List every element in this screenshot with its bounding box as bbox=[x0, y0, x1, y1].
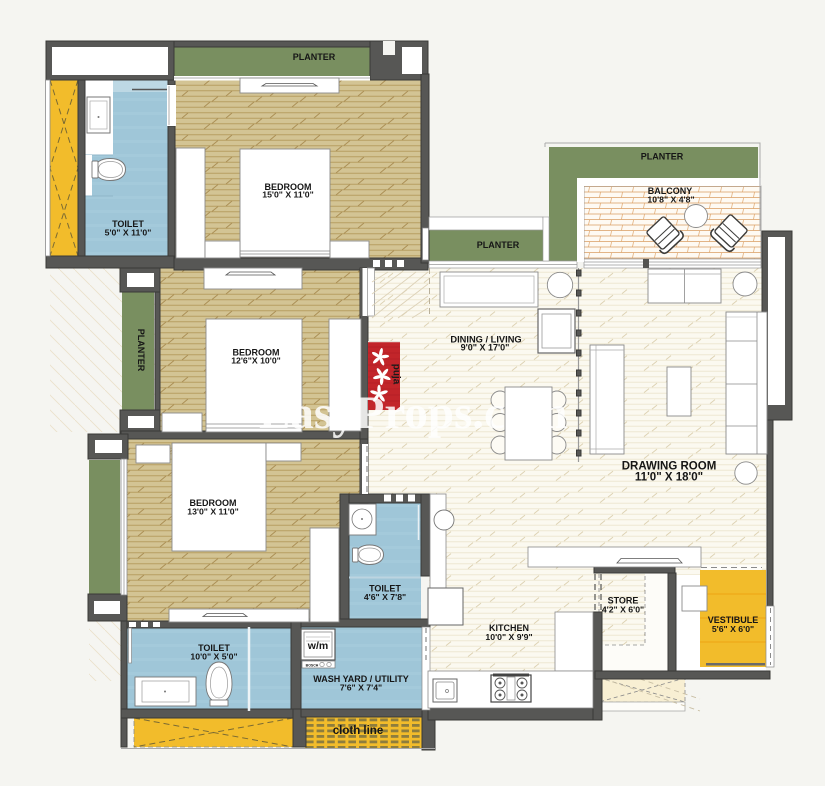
svg-text:EasyProps.com: EasyProps.com bbox=[259, 387, 568, 439]
svg-text:13'0" X 11'0": 13'0" X 11'0" bbox=[187, 507, 239, 517]
svg-text:7'6" X 7'4": 7'6" X 7'4" bbox=[340, 683, 382, 693]
svg-text:PLANTER: PLANTER bbox=[641, 152, 684, 162]
svg-text:9'0" X 17'0": 9'0" X 17'0" bbox=[461, 343, 510, 353]
svg-text:10'0" X 9'9": 10'0" X 9'9" bbox=[485, 632, 532, 642]
svg-text:BOSCH: BOSCH bbox=[306, 664, 319, 668]
svg-text:w/m: w/m bbox=[307, 640, 328, 652]
svg-text:4'6" X 7'8": 4'6" X 7'8" bbox=[364, 592, 406, 602]
svg-text:10'8" X 4'8": 10'8" X 4'8" bbox=[647, 195, 694, 205]
svg-text:PLANTER: PLANTER bbox=[477, 240, 520, 250]
svg-text:5'0" X 11'0": 5'0" X 11'0" bbox=[105, 228, 152, 238]
svg-text:11'0" X 18'0": 11'0" X 18'0" bbox=[635, 471, 703, 483]
svg-text:puja: puja bbox=[391, 364, 402, 385]
svg-text:cloth line: cloth line bbox=[333, 725, 383, 737]
svg-text:PLANTER: PLANTER bbox=[136, 329, 146, 372]
svg-text:10'0" X 5'0": 10'0" X 5'0" bbox=[190, 652, 237, 662]
svg-text:4'2" X 6'0": 4'2" X 6'0" bbox=[602, 605, 644, 615]
svg-text:5'6" X 6'0": 5'6" X 6'0" bbox=[712, 624, 754, 634]
svg-text:15'0" X 11'0": 15'0" X 11'0" bbox=[262, 190, 314, 200]
svg-text:PLANTER: PLANTER bbox=[293, 52, 336, 62]
svg-text:12'6"X 10'0": 12'6"X 10'0" bbox=[231, 356, 281, 366]
